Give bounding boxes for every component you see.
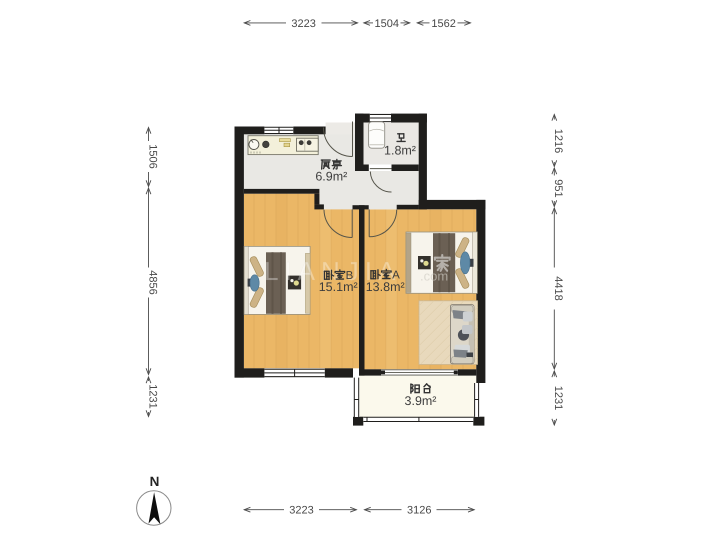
svg-text:3223: 3223: [289, 505, 313, 517]
svg-text:N: N: [150, 474, 160, 489]
svg-text:1562: 1562: [431, 18, 455, 30]
svg-text:3.9m²: 3.9m²: [405, 394, 437, 408]
svg-text:4418: 4418: [552, 276, 564, 300]
svg-text:.com: .com: [420, 269, 448, 284]
svg-text:1506: 1506: [146, 144, 158, 168]
svg-text:1231: 1231: [146, 384, 158, 408]
svg-text:6.9m²: 6.9m²: [315, 169, 347, 183]
svg-text:3223: 3223: [291, 18, 315, 30]
svg-text:1216: 1216: [552, 129, 564, 153]
svg-text:1231: 1231: [552, 386, 564, 410]
svg-text:1504: 1504: [375, 18, 399, 30]
svg-text:1.8m²: 1.8m²: [384, 143, 416, 157]
svg-text:15.1m²: 15.1m²: [319, 280, 358, 294]
svg-text:4856: 4856: [146, 270, 158, 294]
svg-text:13.8m²: 13.8m²: [366, 280, 405, 294]
svg-text:951: 951: [552, 179, 564, 197]
svg-text:3126: 3126: [407, 505, 431, 517]
